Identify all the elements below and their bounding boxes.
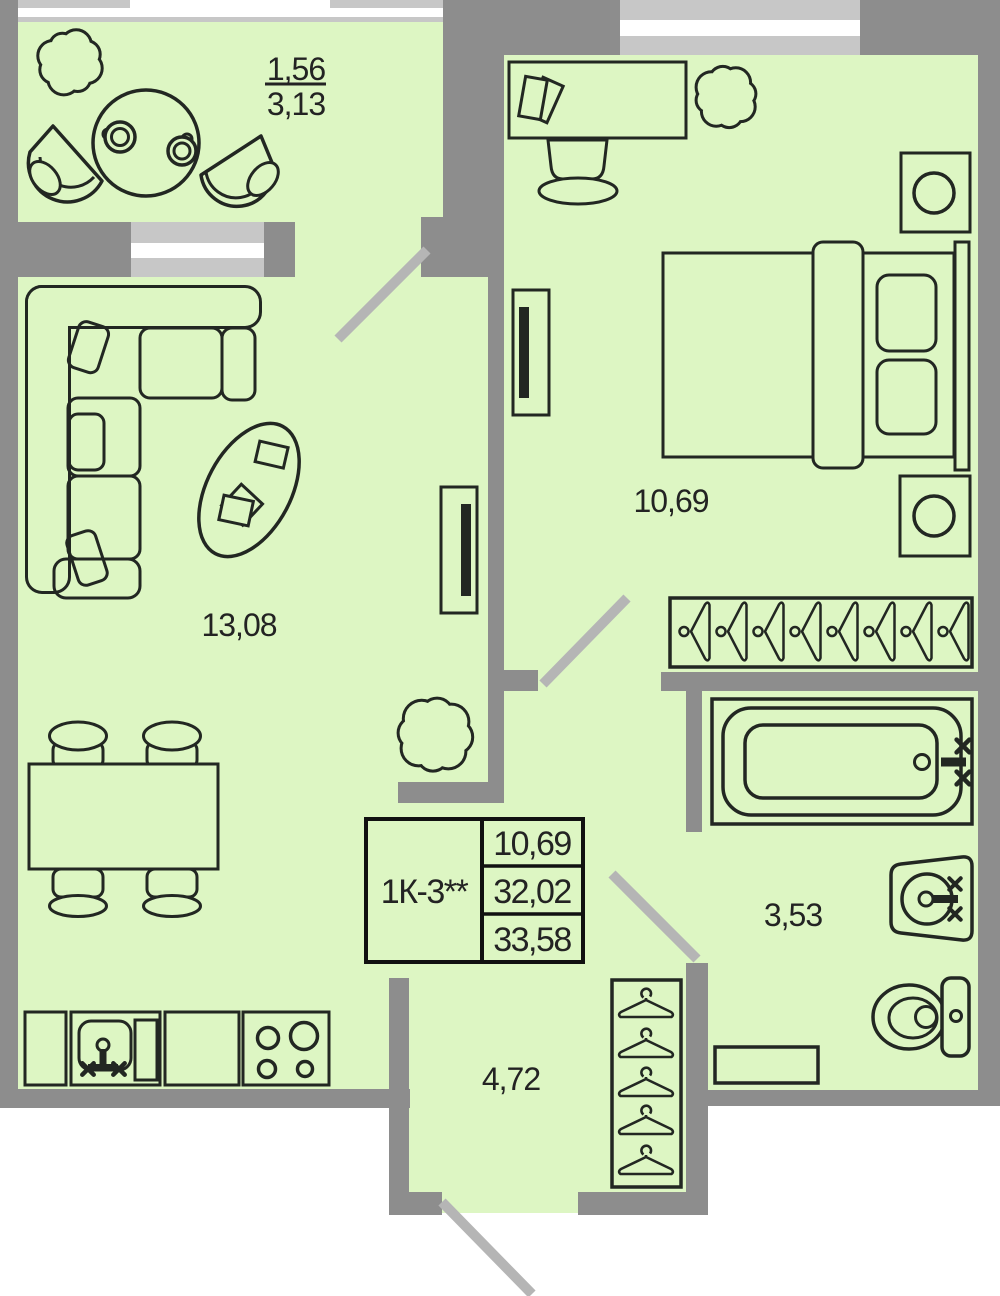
svg-text:10,69: 10,69 <box>493 825 571 863</box>
svg-text:32,02: 32,02 <box>493 873 571 911</box>
svg-text:10,69: 10,69 <box>633 483 708 519</box>
svg-text:1,56: 1,56 <box>267 51 325 87</box>
svg-text:13,08: 13,08 <box>201 607 276 643</box>
svg-text:1К-3**: 1К-3** <box>381 873 469 911</box>
svg-text:33,58: 33,58 <box>493 921 571 959</box>
svg-text:3,13: 3,13 <box>267 86 325 122</box>
svg-text:4,72: 4,72 <box>482 1061 540 1097</box>
svg-text:3,53: 3,53 <box>764 897 822 933</box>
